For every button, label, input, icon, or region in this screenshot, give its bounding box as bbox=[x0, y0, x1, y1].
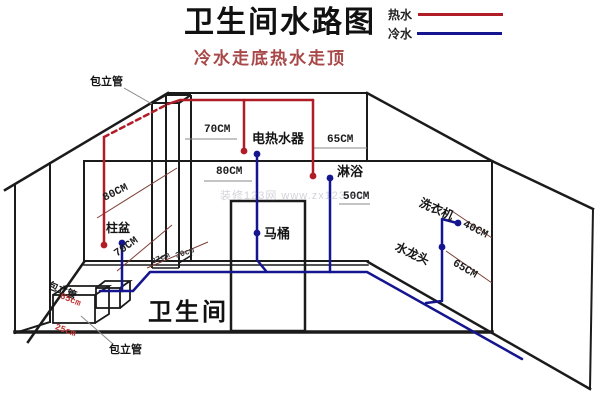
toilet-label: 马桶 bbox=[264, 227, 290, 240]
diagram-subtitle: 冷水走底热水走顶 bbox=[120, 50, 420, 67]
duct-label-top: 包立管 bbox=[90, 77, 123, 88]
toilet-outline bbox=[231, 201, 305, 331]
legend-cold-line bbox=[417, 32, 502, 35]
basin-label: 柱盆 bbox=[106, 222, 130, 234]
dim-80cm-middle: 80CM bbox=[216, 167, 242, 178]
boxed-riser-duct bbox=[152, 95, 192, 268]
water-heater-label: 电热水器 bbox=[252, 132, 304, 145]
dim-65cm-top: 65CM bbox=[327, 135, 353, 146]
room-label: 卫生间 bbox=[148, 301, 229, 325]
hot-water-pipes bbox=[104, 100, 313, 243]
legend-hot-label: 热水 bbox=[388, 9, 412, 21]
watermark: 装修123网 www.zx123.cn bbox=[220, 191, 364, 202]
bathroom-plumbing-diagram: 卫生间水路图 冷水走底热水走顶 热水 冷水 包立管 70CM 电热水器 65CM… bbox=[0, 0, 600, 400]
legend-cold-label: 冷水 bbox=[388, 28, 412, 40]
dim-70cm-top: 70CM bbox=[204, 125, 230, 136]
legend-hot-line bbox=[418, 13, 503, 16]
duct-label-bottom: 包立管 bbox=[109, 345, 142, 356]
shower-label: 淋浴 bbox=[337, 165, 363, 178]
